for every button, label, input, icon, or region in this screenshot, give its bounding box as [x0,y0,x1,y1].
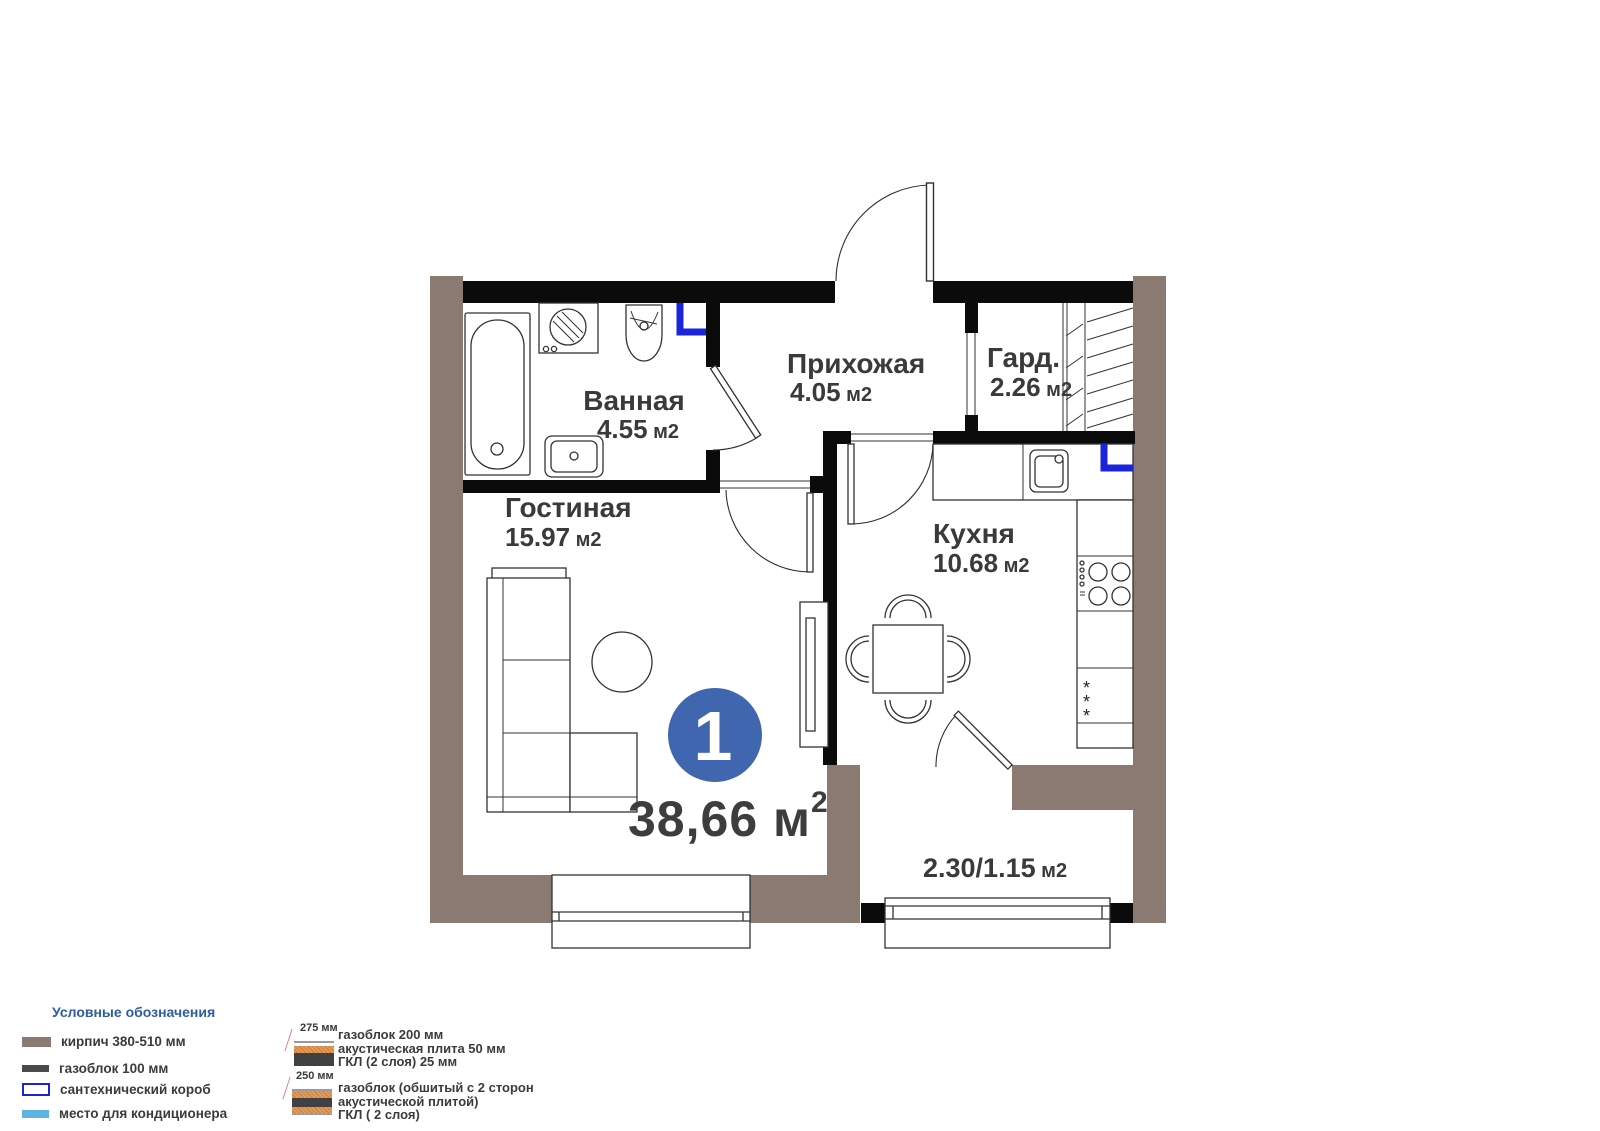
room-area-living: 15.97 м2 [505,522,602,552]
living-room-door-leaf [807,493,813,572]
wall-section-description: газоблок (обшитый с 2 сторон акустическо… [338,1081,534,1122]
wall-section-dimension: 275 мм [300,1022,338,1034]
room-area-bathroom: 4.55 м2 [597,414,679,444]
room-area-balcony: 2.30/1.15 м2 [923,853,1067,883]
kitchen-door-arc [851,444,933,524]
brick-swatch [22,1037,51,1047]
wall-brick-right [1133,276,1166,923]
wall-section-description: газоблок 200 мм акустическая плита 50 мм… [338,1028,506,1069]
balcony-window [885,898,1110,948]
wall-wardrobe-left-lower [965,415,978,444]
room-area-wardrobe: 2.26 м2 [990,372,1072,402]
wall-section-dimension: 250 мм [296,1070,334,1082]
entrance-door [836,183,934,281]
legend-item-ac: место для кондиционера [22,1106,227,1121]
legend-item-brick: кирпич 380-510 мм [22,1034,186,1049]
balcony-door-arc [936,714,957,767]
living-room-door [726,490,813,572]
room-label-bathroom: Ванная [583,385,685,416]
plumbing-box-bathroom [680,303,706,332]
room-label-wardrobe: Гард. [987,342,1060,373]
balcony-window-right-block [1110,903,1133,923]
fridge: * * * [1083,678,1090,726]
legend-item-gasblock: газоблок 100 мм [22,1061,168,1076]
floor-plan-page: * * * Ванная 4.55 м2 Прихожая 4.05 м2 Га… [0,0,1600,1131]
unit-badge-number: 1 [694,697,733,775]
wardrobe-shelving [1063,303,1133,431]
gasblock-layer [292,1098,332,1107]
room-label-kitchen: Кухня [933,518,1015,549]
bathroom-sink [545,436,603,477]
balcony-door-leaf [954,711,1012,769]
room-area-kitchen: 10.68 м2 [933,548,1030,578]
plumbing-box-swatch [22,1083,50,1096]
toilet [626,305,662,361]
legend-title: Условные обозначения [52,1004,215,1020]
dining-table [873,625,943,693]
wall-bathroom-right-upper [706,303,720,367]
kitchen-door [848,444,933,524]
bathroom-door [710,365,760,450]
wall-top-right [933,281,1133,303]
bathroom-door-arc [713,437,758,450]
kitchen-sink [1030,450,1068,492]
wall-wardrobe-left-upper [965,303,978,333]
acoustic-plate-layer [292,1091,332,1098]
wall-brick-balcony-top [1012,765,1133,810]
kitchen-door-leaf [848,444,854,524]
acoustic-plate-layer [294,1046,334,1053]
wall-section-swatch-250 [292,1089,332,1115]
bathroom-door-leaf [710,365,760,438]
tv-stand [800,602,828,747]
svg-text:*: * [1083,706,1090,726]
balcony-window-left-block [861,903,885,923]
total-area: 38,66 м2 [628,786,828,847]
floor-plan-svg: * * * Ванная 4.55 м2 Прихожая 4.05 м2 Га… [0,0,1600,1131]
living-room-door-arc [726,490,810,572]
balcony-door [936,711,1012,769]
wall-kitchen-top [933,431,1135,444]
wall-brick-bottom-left [463,875,553,923]
bathtub [465,313,530,475]
coffee-table [592,632,652,692]
wall-brick-left [430,276,463,923]
entrance-door-leaf [927,183,934,281]
living-room-window [552,875,750,948]
legend-item-label: кирпич 380-510 мм [61,1034,186,1049]
entrance-door-arc [836,185,929,281]
room-area-hallway: 4.05 м2 [790,377,872,407]
legend-item-label: газоблок 100 мм [59,1061,168,1076]
gasblock-layer [294,1053,334,1066]
room-label-hallway: Прихожая [787,348,925,379]
legend-item-label: сантехнический короб [60,1082,211,1097]
wall-section-swatch-275 [294,1041,334,1066]
wall-brick-bottom-mid [750,875,860,923]
wall-brick-balcony-left [827,765,860,875]
legend-item-label: место для кондиционера [59,1106,227,1121]
legend-item-plumbing-box: сантехнический короб [22,1082,211,1097]
unit-badge: 1 [668,688,762,782]
ac-place-swatch [22,1110,49,1118]
acoustic-plate-layer [292,1107,332,1114]
wall-kitchen-top-piece [823,431,851,444]
wall-top-left [463,281,835,303]
gasblock-swatch [22,1065,49,1072]
washing-machine [539,303,598,353]
wall-living-entry-stub [810,476,823,493]
room-label-living: Гостиная [505,492,632,523]
